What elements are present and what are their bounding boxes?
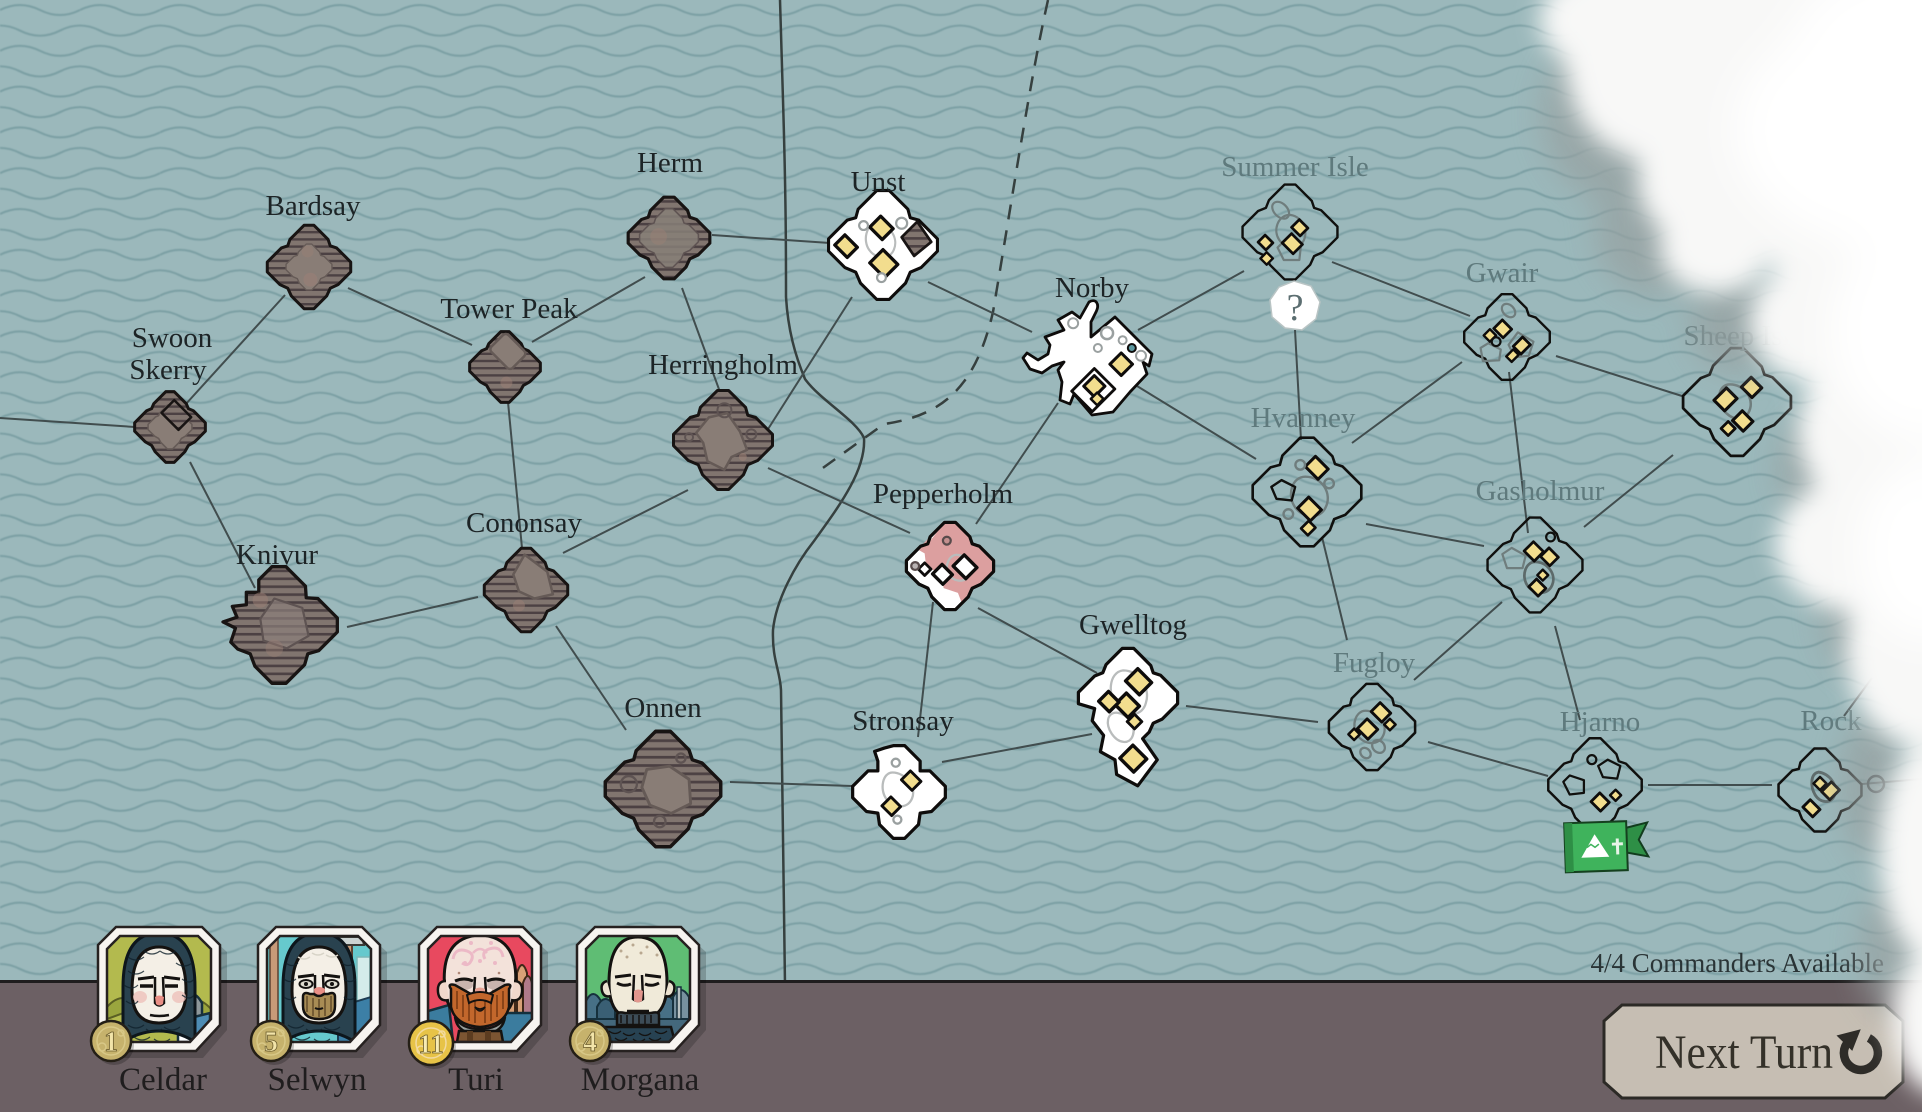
svg-text:Stronsay: Stronsay xyxy=(852,705,954,737)
svg-text:4/4 Commanders Available: 4/4 Commanders Available xyxy=(1591,948,1884,978)
svg-text:Celdar: Celdar xyxy=(119,1062,207,1098)
svg-text:Herm: Herm xyxy=(637,147,703,179)
svg-text:Fugloy: Fugloy xyxy=(1333,647,1416,679)
svg-text:Hjarno: Hjarno xyxy=(1560,706,1641,738)
svg-text:Selwyn: Selwyn xyxy=(268,1062,367,1098)
svg-text:Cononsay: Cononsay xyxy=(466,507,583,539)
svg-text:Herringholm: Herringholm xyxy=(648,349,798,381)
svg-text:Bardsay: Bardsay xyxy=(265,190,361,222)
svg-text:1: 1 xyxy=(104,1027,118,1058)
svg-text:Onnen: Onnen xyxy=(624,692,702,724)
svg-text:Summer Isle: Summer Isle xyxy=(1221,151,1368,183)
svg-text:Gwelltog: Gwelltog xyxy=(1079,609,1187,641)
svg-text:Skerry: Skerry xyxy=(129,354,207,386)
svg-text:Turi: Turi xyxy=(448,1062,504,1098)
svg-text:4: 4 xyxy=(583,1027,597,1058)
svg-text:Knivur: Knivur xyxy=(236,539,319,571)
svg-text:Gwair: Gwair xyxy=(1466,257,1539,289)
svg-text:5: 5 xyxy=(264,1027,278,1058)
svg-text:Morgana: Morgana xyxy=(581,1062,700,1098)
svg-text:Gasholmur: Gasholmur xyxy=(1476,475,1605,507)
svg-text:Unst: Unst xyxy=(851,166,906,198)
svg-text:Tower Peak: Tower Peak xyxy=(440,293,578,325)
svg-text:Norby: Norby xyxy=(1055,272,1130,304)
svg-text:Pepperholm: Pepperholm xyxy=(873,478,1014,510)
svg-text:11: 11 xyxy=(418,1029,444,1059)
svg-text:Swoon: Swoon xyxy=(132,322,213,354)
svg-text:Hvanney: Hvanney xyxy=(1251,402,1356,434)
svg-text:Next Turn: Next Turn xyxy=(1655,1026,1833,1079)
svg-text:?: ? xyxy=(1287,287,1304,329)
